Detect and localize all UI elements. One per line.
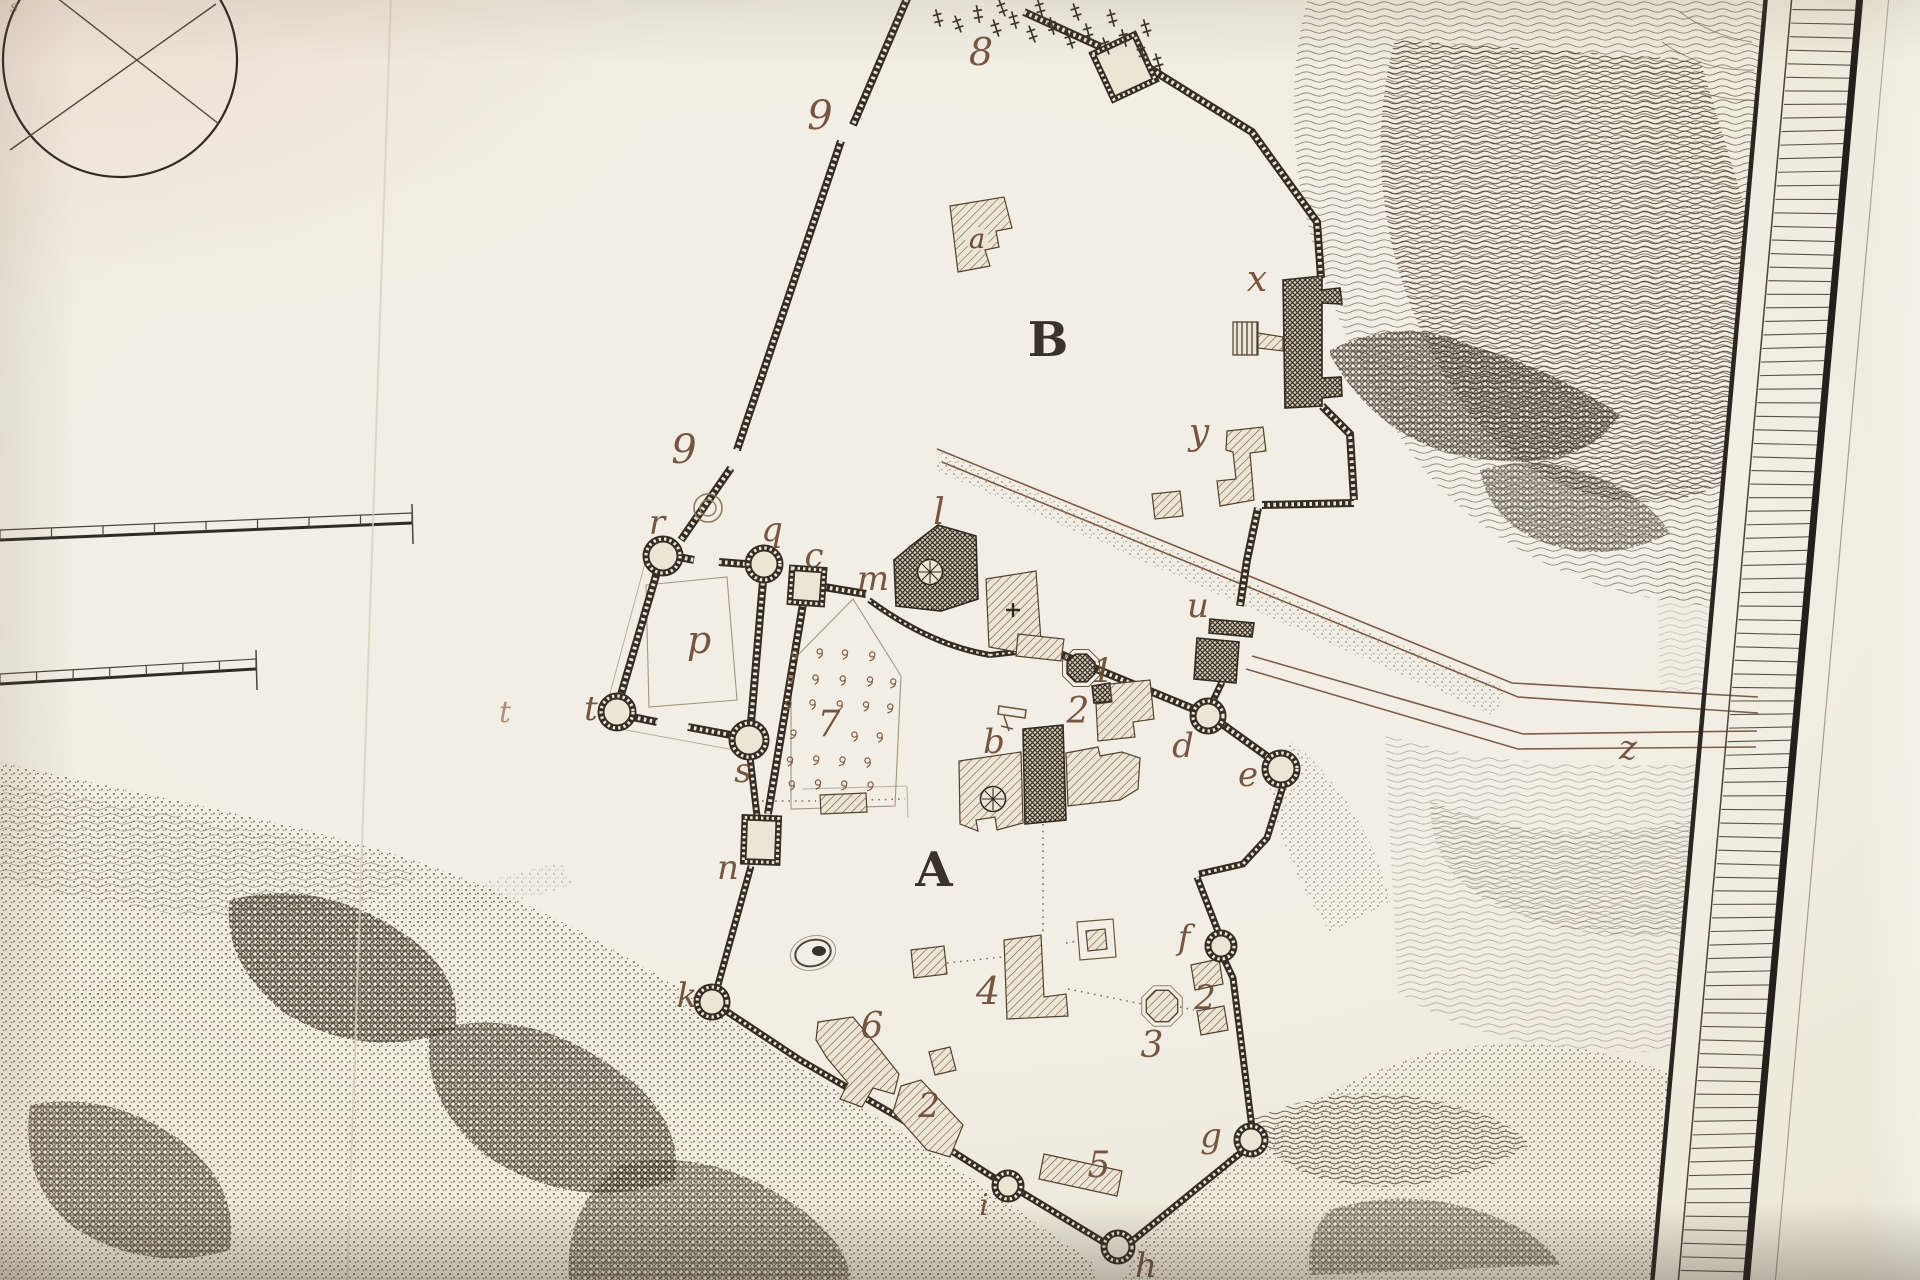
border-rung: [1719, 837, 1783, 838]
border-rung: [1782, 130, 1846, 131]
border-rung: [1737, 633, 1801, 634]
cheval-de-frise-icon: [1139, 18, 1153, 38]
border-rung: [1752, 471, 1816, 472]
border-rung: [1726, 754, 1790, 756]
square-tower-wall-2: [743, 817, 779, 862]
border-rung: [1708, 957, 1772, 959]
border-rung: [1756, 416, 1820, 417]
map-label-t: t: [499, 695, 512, 730]
tent-symbol-icon: [789, 781, 795, 791]
tent-symbol-icon: [787, 757, 792, 766]
border-rung: [1730, 714, 1794, 715]
map-label-6: 6: [861, 1006, 884, 1047]
map-label-c: c: [804, 536, 823, 576]
border-rung: [1693, 1134, 1757, 1135]
terrain-ne-corner-light: [1640, 70, 1790, 700]
building-3: [1258, 333, 1283, 351]
wall-segment-5: [1322, 406, 1354, 500]
survey-dotted-line-6: [865, 799, 905, 800]
border-rung: [1744, 550, 1808, 552]
tent-symbol-icon: [890, 679, 896, 689]
border-rung: [1750, 484, 1814, 485]
wall-brick-ticks-1: [737, 141, 841, 450]
border-rung: [1707, 971, 1771, 972]
border-rung: [1702, 1026, 1766, 1027]
tent-symbol-icon: [840, 676, 846, 686]
border-rung: [1698, 1081, 1762, 1082]
map-label-a-front: a: [969, 224, 985, 255]
compass-circle: [3, 0, 237, 177]
border-rung: [1777, 185, 1841, 186]
border-rung: [1711, 930, 1775, 931]
map-label-p: p: [687, 618, 711, 662]
tent-symbol-icon: [887, 704, 893, 714]
building-10: [1023, 725, 1066, 824]
tent-symbol-icon: [817, 649, 823, 659]
map-label-A: A: [914, 842, 953, 898]
building-22: [929, 1047, 956, 1075]
map-label-9: 9: [671, 427, 696, 473]
border-rung: [1779, 157, 1843, 158]
building-23: [820, 793, 867, 814]
border-rung: [1706, 985, 1770, 986]
cheval-de-frise-icon: [1069, 2, 1083, 22]
border-rung: [1742, 578, 1806, 579]
border-rung: [1724, 781, 1788, 782]
border-rung: [1700, 1054, 1764, 1056]
tent-symbol-icon: [813, 756, 819, 766]
cheval-de-frise-icon: [1025, 24, 1040, 44]
border-rung: [1773, 226, 1837, 227]
border-rung: [1747, 524, 1811, 525]
border-rung: [1735, 660, 1799, 662]
map-label-h: h: [1135, 1246, 1157, 1280]
border-rung: [1689, 1174, 1753, 1175]
border-rung: [1712, 917, 1776, 918]
building-15: [1004, 935, 1068, 1019]
tent-symbol-icon: [867, 677, 872, 686]
border-rung: [1771, 254, 1835, 256]
map-label-7: 7: [818, 704, 841, 745]
map-label-y: y: [1187, 412, 1210, 453]
cheval-de-frise-icon: [1007, 10, 1020, 30]
map-label-1: 1: [1092, 651, 1114, 691]
map-label-m: m: [857, 559, 889, 599]
border-rung: [1786, 77, 1850, 78]
border-rung: [1684, 1230, 1748, 1231]
border-rung: [1778, 171, 1842, 172]
survey-dotted-line-2: [1068, 989, 1142, 1004]
map-label-9: 9: [807, 93, 832, 139]
photographed-map-page: BAabcdefghiklmnpqrstuxyz122234567899tsa: [0, 0, 1920, 1280]
tent-symbol-icon: [863, 702, 868, 711]
border-rung: [1762, 347, 1826, 349]
border-rung: [1714, 891, 1778, 892]
border-rung: [1683, 1243, 1747, 1245]
wall-brick-ticks-2: [681, 468, 731, 540]
border-heavy-rail: [1746, 0, 1860, 1280]
map-label-n: n: [717, 848, 739, 888]
map-label-s: s: [10, 0, 18, 16]
map-label-i: i: [979, 1188, 989, 1223]
rosette-spokes: [982, 788, 1004, 810]
square-tower-2: [743, 817, 779, 862]
cheval-de-frise-icon: [931, 8, 944, 28]
border-rung: [1704, 1013, 1768, 1014]
tent-symbol-icon: [869, 652, 875, 662]
border-rung: [1748, 511, 1812, 512]
border-rung: [1755, 430, 1819, 431]
border-rung: [1690, 1160, 1754, 1162]
border-rung: [1754, 443, 1818, 445]
map-label-e: e: [1238, 755, 1258, 795]
border-rung: [1718, 850, 1782, 852]
map-label-2: 2: [917, 1086, 940, 1126]
camp-7-boundary: [791, 599, 901, 809]
compass-ring: [3, 0, 237, 177]
tent-symbol-icon: [864, 757, 871, 767]
building-2: [1233, 322, 1258, 355]
map-label-x: x: [1247, 259, 1267, 300]
border-rung: [1746, 537, 1810, 539]
building-16: [1086, 929, 1107, 951]
tent-symbol-icon: [877, 733, 883, 743]
border-rung: [1716, 877, 1780, 878]
border-rung: [1694, 1120, 1758, 1121]
border-rung: [1770, 267, 1834, 268]
border-rung: [1688, 1188, 1752, 1189]
border-rung: [1725, 767, 1789, 768]
map-label-4: 4: [975, 969, 1000, 1013]
cheval-de-frise-icon: [972, 4, 984, 23]
border-rung: [1717, 864, 1781, 865]
border-rung: [1772, 240, 1836, 242]
border-rung: [1761, 361, 1825, 362]
tent-symbol-icon: [815, 780, 820, 789]
map-label-z: z: [1618, 728, 1638, 768]
compass-needle-1: [52, 0, 219, 124]
tent-symbol-icon: [841, 781, 847, 791]
map-label-f: f: [1175, 918, 1196, 958]
border-rung: [1729, 727, 1793, 728]
border-rung: [1699, 1067, 1763, 1068]
map-label-2: 2: [1066, 691, 1090, 732]
border-rung: [1768, 281, 1832, 282]
building-1: [1283, 276, 1342, 408]
border-rung: [1732, 687, 1796, 688]
border-rung: [1681, 1270, 1745, 1271]
engraved-fortress-plan: BAabcdefghiklmnpqrstuxyz122234567899tsa: [0, 0, 1920, 1280]
octagon-feature-1: [1067, 654, 1095, 682]
rosette-spokes: [919, 561, 941, 583]
map-label-s: s: [734, 751, 751, 791]
border-rung: [1789, 50, 1853, 52]
border-rung: [1765, 320, 1829, 321]
border-rung: [1760, 375, 1824, 376]
scale-bar-1: [0, 650, 257, 690]
cheval-de-frise-icon: [1105, 8, 1118, 28]
building-4: [1217, 427, 1266, 506]
border-rung: [1788, 64, 1852, 65]
border-rung: [1790, 37, 1854, 39]
octagon-feature-3: [1146, 990, 1177, 1021]
border-outer-line: [1775, 0, 1889, 1280]
map-label-u: u: [1187, 586, 1209, 626]
border-rung: [1710, 943, 1774, 945]
border-rung: [1743, 564, 1807, 565]
scale-bars: [0, 504, 413, 690]
tent-symbol-icon: [867, 781, 874, 791]
tent-symbol-icon: [842, 650, 847, 659]
map-label-t: t: [584, 689, 598, 729]
map-label-B: B: [1028, 312, 1069, 368]
map-label-l: l: [933, 492, 945, 533]
building-8: [1016, 634, 1064, 661]
building-14: [911, 946, 947, 978]
building-5: [1152, 491, 1183, 519]
map-label-5: 5: [1088, 1145, 1111, 1186]
survey-dotted-line-4: [947, 957, 1002, 963]
border-rung: [1692, 1147, 1756, 1149]
building-24: [1209, 619, 1254, 637]
oval-feature-core: [812, 946, 826, 956]
border-rung: [1734, 674, 1798, 675]
tent-symbol-icon: [839, 756, 846, 766]
cheval-de-frise-icon: [951, 14, 966, 34]
border-rung: [1736, 647, 1800, 649]
border-rung: [1780, 144, 1844, 146]
tent-symbol-icon: [812, 674, 819, 684]
border-rung: [1774, 213, 1838, 214]
border-rung: [1720, 823, 1784, 824]
tent-symbol-icon: [851, 731, 858, 741]
border-rung: [1738, 620, 1802, 621]
map-label-b: b: [983, 722, 1005, 762]
map-label-2: 2: [1193, 978, 1216, 1018]
border-rung: [1783, 117, 1847, 118]
map-label-g: g: [1200, 1116, 1222, 1156]
cheval-de-frise-icon: [995, 0, 1010, 18]
tent-symbol-icon: [809, 699, 816, 709]
border-rung: [1791, 23, 1855, 24]
border-rung: [1753, 457, 1817, 459]
building-25: [1194, 638, 1239, 683]
border-rung: [1728, 740, 1792, 742]
map-label-d: d: [1172, 726, 1194, 766]
compass-needle-2: [10, 4, 216, 150]
map-label-r: r: [649, 503, 667, 543]
map-label-q: q: [761, 510, 783, 550]
border-rung: [1686, 1216, 1750, 1217]
scale-bar-0: [0, 504, 413, 544]
map-label-3: 3: [1141, 1025, 1164, 1066]
map-label-k: k: [677, 976, 698, 1016]
border-rung: [1764, 333, 1828, 334]
border-rung: [1701, 1040, 1765, 1041]
border-rung: [1792, 10, 1856, 11]
survey-dotted-line-5: [1066, 941, 1078, 943]
map-label-8: 8: [969, 30, 993, 74]
border-rung: [1682, 1257, 1746, 1259]
building-11: [1066, 747, 1140, 806]
